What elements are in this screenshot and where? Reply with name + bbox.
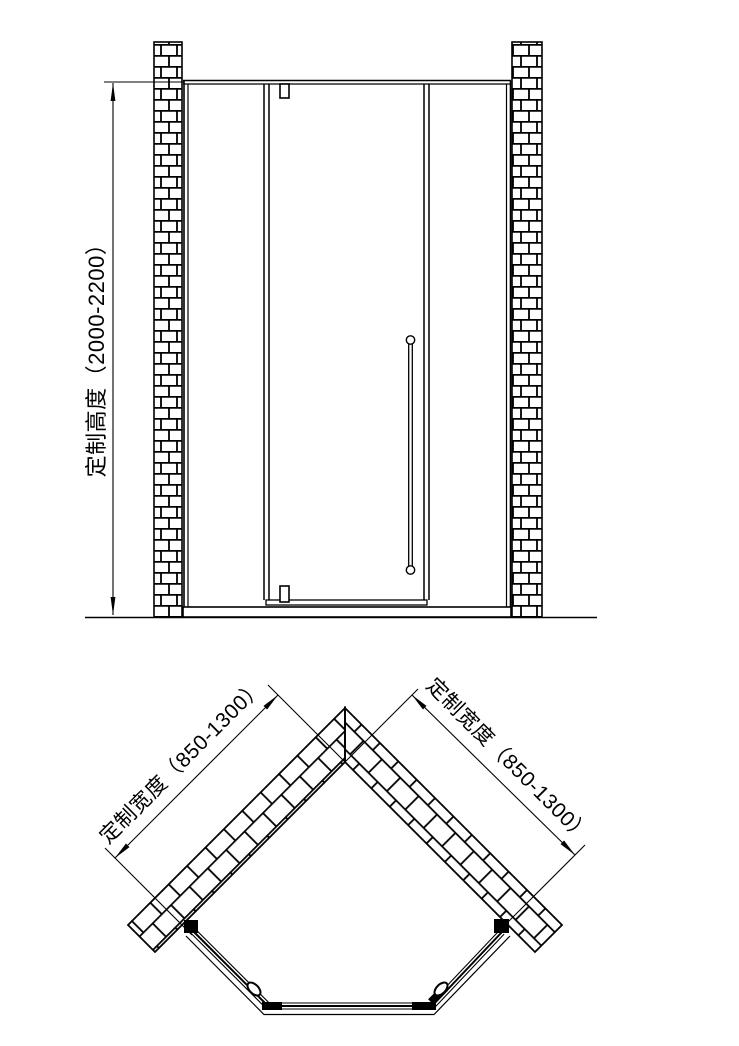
left-wall-profile <box>184 920 198 933</box>
glass-panels <box>186 926 510 1015</box>
plan-view: 定制宽度（850-1300） 定制宽度（850-1300） <box>95 674 594 1015</box>
arrow-up-icon <box>111 83 116 101</box>
shower-enclosure-drawing: 定制高度（2000-2200） <box>0 0 739 1046</box>
left-corner-bracket <box>262 1002 282 1010</box>
arrow-up-right-icon <box>264 695 279 710</box>
door-handle <box>406 336 414 574</box>
door-bottom-rail <box>266 600 427 605</box>
arrow-up-left-icon <box>412 695 427 710</box>
shower-frame <box>183 81 511 618</box>
width-dimension-left: 定制宽度（850-1300） <box>95 675 345 935</box>
technical-drawing-canvas: 定制高度（2000-2200） <box>0 0 739 1046</box>
hinge-bottom <box>280 586 289 602</box>
right-pivot-knob <box>432 980 450 998</box>
hinge-top <box>280 84 289 98</box>
width-dimension-right: 定制宽度（850-1300） <box>345 674 595 930</box>
handle-top-knob <box>406 336 414 344</box>
left-pivot-knob <box>245 980 263 998</box>
right-brick-pier <box>512 42 542 617</box>
elevation-view: 定制高度（2000-2200） <box>84 42 597 618</box>
bottom-threshold <box>183 607 511 617</box>
arrow-down-icon <box>111 597 116 615</box>
right-wall-profile <box>494 919 509 933</box>
plan-left-wall <box>128 708 345 952</box>
arrow-down-right-icon <box>561 841 576 856</box>
handle-bottom-knob <box>406 566 414 574</box>
plan-right-wall <box>345 708 562 952</box>
arrow-down-left-icon <box>115 844 130 859</box>
height-dimension-label: 定制高度（2000-2200） <box>84 233 109 478</box>
left-brick-pier <box>154 42 182 617</box>
